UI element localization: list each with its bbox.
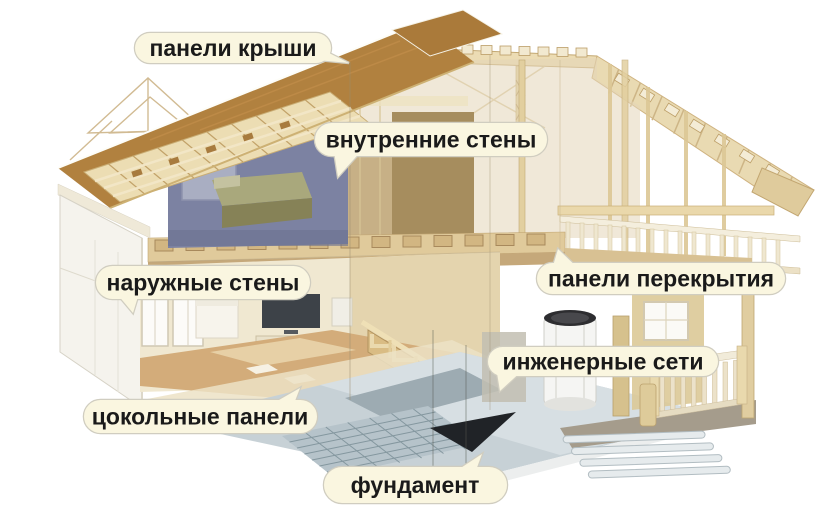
- callout-roof-panels: панели крыши: [115, 3, 367, 95]
- callout-exterior-walls-text: наружные стены: [107, 270, 300, 296]
- callout-foundation: фундамент: [304, 437, 543, 518]
- callout-floor-panels-text: панели перекрытия: [548, 266, 774, 292]
- callout-basement-panels-text: цокольные панели: [92, 404, 308, 430]
- callout-interior-walls: внутренние стены: [295, 93, 583, 188]
- infographic-canvas: панели крыши внутренние стены наружные с…: [0, 0, 830, 518]
- callout-utilities: инженерные сети: [468, 317, 754, 408]
- callout-roof-panels-text: панели крыши: [149, 35, 316, 61]
- utility-pipes: [563, 430, 730, 479]
- callout-utilities-text: инженерные сети: [503, 349, 704, 375]
- callout-floor-panels: панели перекрытия: [517, 233, 821, 326]
- callout-interior-walls-text: внутренние стены: [326, 127, 537, 153]
- callout-foundation-text: фундамент: [351, 472, 480, 498]
- callout-exterior-walls: наружные стены: [76, 236, 346, 331]
